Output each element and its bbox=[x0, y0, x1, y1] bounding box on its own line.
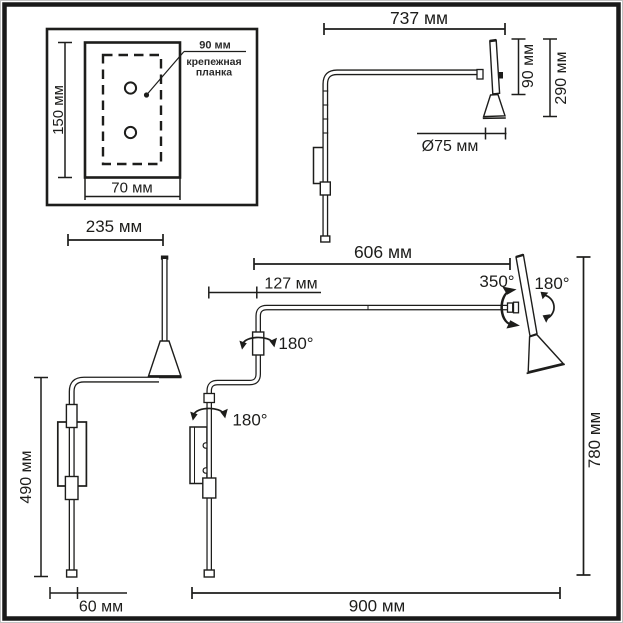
pole-sleeve-lower bbox=[203, 478, 216, 498]
mounting-hole-bottom bbox=[125, 127, 136, 138]
pole-sleeve bbox=[320, 182, 330, 195]
dim-shade-diameter: Ø75 мм bbox=[422, 138, 479, 155]
dim-head-drop: 290 мм bbox=[553, 51, 570, 104]
dim-wall-offset: 127 мм bbox=[264, 276, 317, 293]
dim-arm-reach: 606 мм bbox=[354, 242, 412, 262]
dim-arm-length: 737 мм bbox=[390, 8, 448, 28]
pole-tip bbox=[321, 236, 330, 242]
pole-tip bbox=[67, 570, 77, 577]
dim-total-height: 780 мм bbox=[585, 412, 604, 468]
angle-elbow-swivel: 180° bbox=[278, 334, 313, 353]
head-joint bbox=[508, 303, 513, 312]
dim-total-reach: 900 мм bbox=[349, 597, 405, 616]
pole-collar bbox=[204, 394, 214, 403]
dim-base-width: 60 мм bbox=[79, 599, 123, 616]
angle-head-tilt: 180° bbox=[534, 274, 569, 293]
pole-sleeve-upper bbox=[66, 405, 77, 428]
dim-plate-height: 150 мм bbox=[50, 85, 67, 135]
dim-depth-label: 235 мм bbox=[86, 217, 142, 236]
dim-body-height: 490 мм bbox=[18, 450, 35, 503]
dim-stem-height: 90 мм bbox=[520, 44, 537, 88]
plate-name-line2: планка bbox=[196, 67, 232, 79]
pole-sleeve-lower bbox=[65, 477, 78, 500]
dim-plate-width: 70 мм bbox=[111, 180, 152, 197]
wall-plate-side bbox=[190, 427, 207, 484]
mounting-hole-top bbox=[125, 82, 136, 93]
plate-width-label: 90 мм bbox=[199, 40, 231, 52]
mounting-plate-inset: 90 мм крепежная планка 150 мм 70 мм bbox=[47, 29, 257, 205]
angle-head-swivel: 350° bbox=[479, 272, 514, 291]
diagram-canvas: 90 мм крепежная планка 150 мм 70 мм 235 … bbox=[0, 0, 623, 623]
elbow-joint-sleeve bbox=[253, 332, 264, 355]
head-joint-collar bbox=[514, 302, 519, 313]
angle-base-swivel: 180° bbox=[232, 411, 267, 430]
pole-tip bbox=[204, 570, 214, 577]
head-joint bbox=[477, 70, 483, 80]
lamp-dimensions-diagram: 90 мм крепежная планка 150 мм 70 мм 235 … bbox=[0, 0, 623, 623]
